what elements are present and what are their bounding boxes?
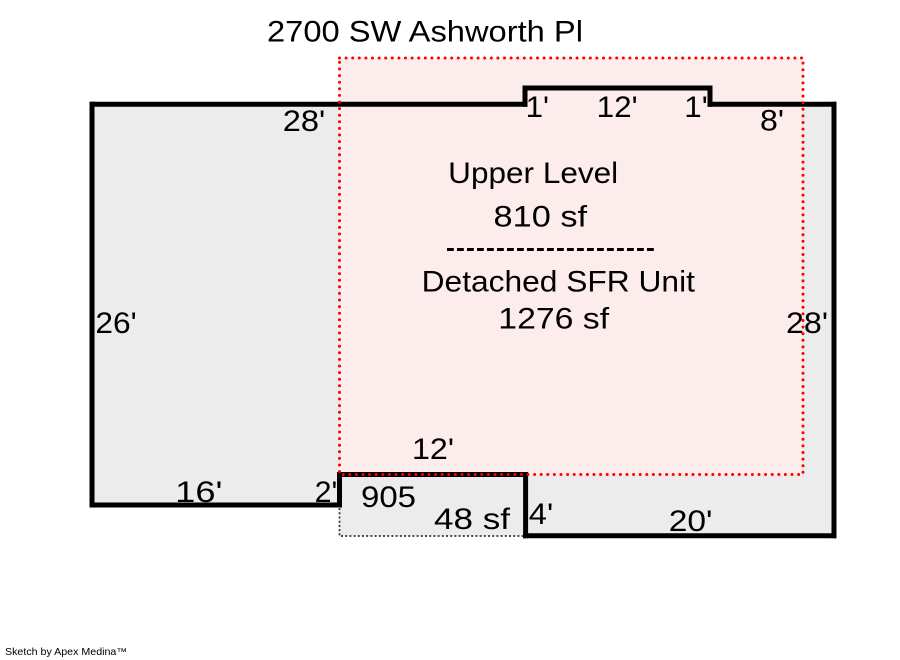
svg-text:16': 16' xyxy=(175,476,222,509)
svg-text:2700 SW Ashworth Pl: 2700 SW Ashworth Pl xyxy=(267,16,583,49)
svg-text:Detached SFR Unit: Detached SFR Unit xyxy=(422,266,696,299)
svg-text:12': 12' xyxy=(597,91,638,124)
svg-text:28': 28' xyxy=(283,105,326,138)
svg-text:12': 12' xyxy=(412,433,454,466)
svg-text:8': 8' xyxy=(760,105,784,138)
svg-text:4': 4' xyxy=(529,498,553,531)
svg-text:Sketch by Apex Medina™: Sketch by Apex Medina™ xyxy=(5,647,127,658)
svg-text:26': 26' xyxy=(95,307,136,340)
svg-text:28': 28' xyxy=(786,307,828,340)
svg-text:20': 20' xyxy=(669,505,713,538)
svg-text:810 sf: 810 sf xyxy=(494,201,588,234)
svg-text:48 sf: 48 sf xyxy=(434,503,511,536)
svg-text:Upper Level: Upper Level xyxy=(448,157,618,190)
svg-text:1276 sf: 1276 sf xyxy=(498,302,610,335)
svg-text:1': 1' xyxy=(684,91,707,124)
svg-text:2': 2' xyxy=(315,476,338,509)
svg-text:905: 905 xyxy=(361,481,416,514)
svg-text:1': 1' xyxy=(526,91,549,124)
